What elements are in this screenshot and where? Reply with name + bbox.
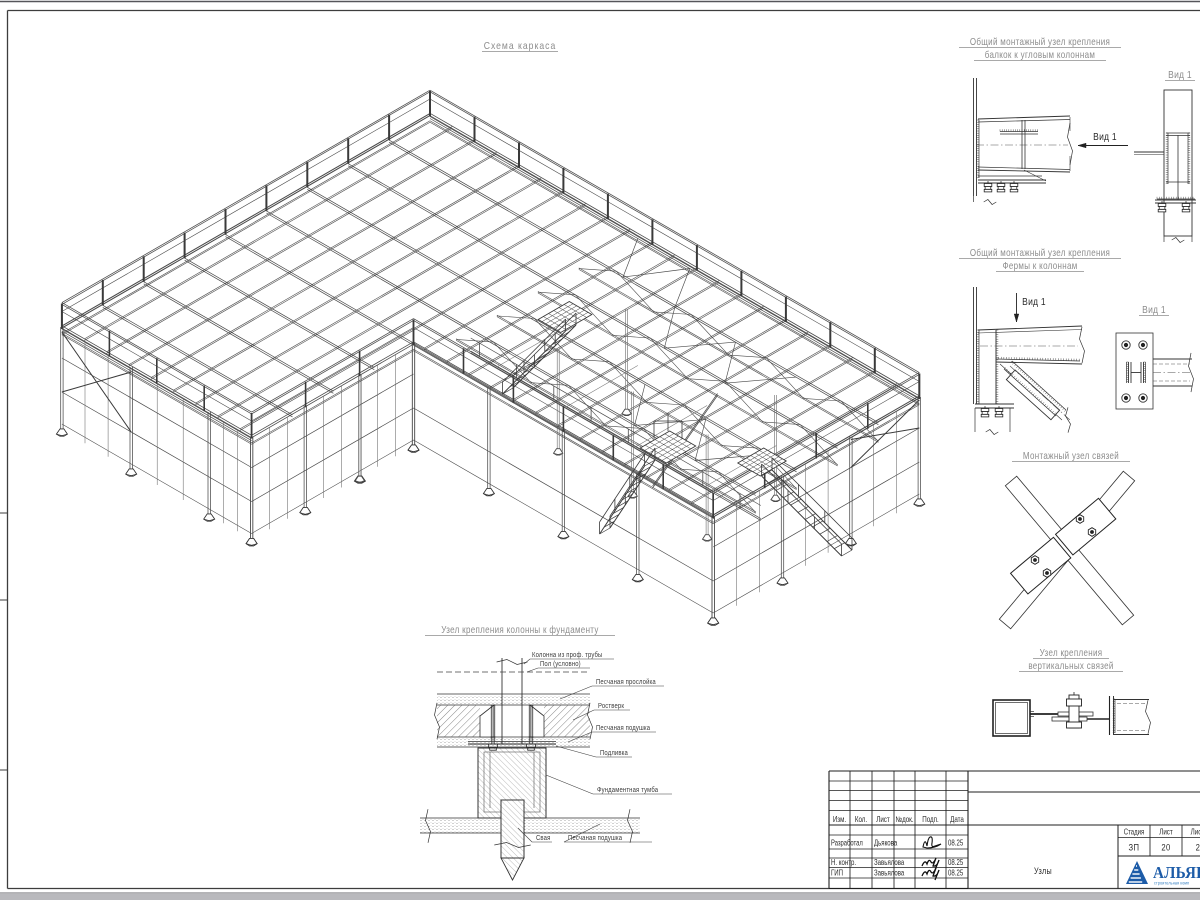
svg-text:2: 2: [1196, 842, 1200, 853]
svg-text:Вид 1: Вид 1: [1022, 296, 1046, 307]
svg-text:Узел крепления колонны к фунда: Узел крепления колонны к фундаменту: [441, 624, 598, 635]
svg-text:Лист: Лист: [1159, 828, 1173, 837]
svg-text:Завьялова: Завьялова: [874, 870, 904, 878]
svg-text:20: 20: [1161, 842, 1170, 853]
svg-text:Дьякова: Дьякова: [874, 840, 897, 848]
svg-text:строительная комп: строительная комп: [1154, 880, 1189, 886]
svg-text:08.25: 08.25: [948, 840, 963, 848]
svg-text:Пол (условно): Пол (условно): [540, 660, 581, 668]
svg-text:Подп.: Подп.: [922, 815, 939, 824]
svg-text:Разработал: Разработал: [831, 839, 863, 848]
svg-text:Н. контр.: Н. контр.: [831, 859, 856, 867]
svg-text:Колонна из проф. трубы: Колонна из проф. трубы: [532, 650, 602, 659]
svg-text:Монтажный узел связей: Монтажный узел связей: [1023, 450, 1119, 461]
svg-text:08.25: 08.25: [948, 870, 963, 878]
svg-text:Ростверк: Ростверк: [598, 702, 624, 710]
svg-text:Стадия: Стадия: [1124, 829, 1145, 837]
svg-text:Дата: Дата: [950, 815, 964, 824]
svg-text:Песчаная прослойка: Песчаная прослойка: [596, 677, 656, 686]
svg-text:балкок к угловым колоннам: балкок к угловым колоннам: [985, 49, 1095, 60]
svg-text:Завьялова: Завьялова: [874, 859, 904, 867]
svg-text:Песчаная подушка: Песчаная подушка: [596, 724, 650, 732]
svg-text:Лист: Лист: [876, 815, 890, 824]
svg-text:Лис: Лис: [1191, 828, 1200, 837]
svg-text:вертикальных связей: вертикальных связей: [1028, 660, 1113, 671]
svg-text:Вид 1: Вид 1: [1168, 69, 1192, 80]
svg-text:Песчаная подушка: Песчаная подушка: [568, 834, 622, 842]
svg-text:Узлы: Узлы: [1034, 866, 1052, 876]
svg-text:Фермы к колоннам: Фермы к колоннам: [1002, 260, 1077, 271]
svg-text:ЗП: ЗП: [1129, 842, 1140, 853]
svg-text:Вид 1: Вид 1: [1142, 304, 1166, 315]
svg-text:08.25: 08.25: [948, 859, 963, 867]
svg-text:Изм.: Изм.: [833, 815, 846, 824]
svg-text:Кол.: Кол.: [855, 815, 867, 824]
svg-text:Фундаментная тумба: Фундаментная тумба: [597, 785, 658, 794]
svg-text:ГИП: ГИП: [831, 870, 843, 878]
svg-text:Свая: Свая: [536, 834, 551, 842]
svg-text:Общий монтажный узел крепления: Общий монтажный узел крепления: [970, 36, 1110, 47]
svg-text:№док.: №док.: [895, 815, 913, 824]
svg-text:Подливка: Подливка: [600, 749, 628, 757]
svg-text:Общий монтажный узел крепления: Общий монтажный узел крепления: [970, 247, 1110, 258]
svg-text:Узел крепления: Узел крепления: [1040, 647, 1103, 658]
svg-text:Схема каркаса: Схема каркаса: [484, 40, 556, 52]
svg-text:Вид 1: Вид 1: [1093, 131, 1117, 142]
